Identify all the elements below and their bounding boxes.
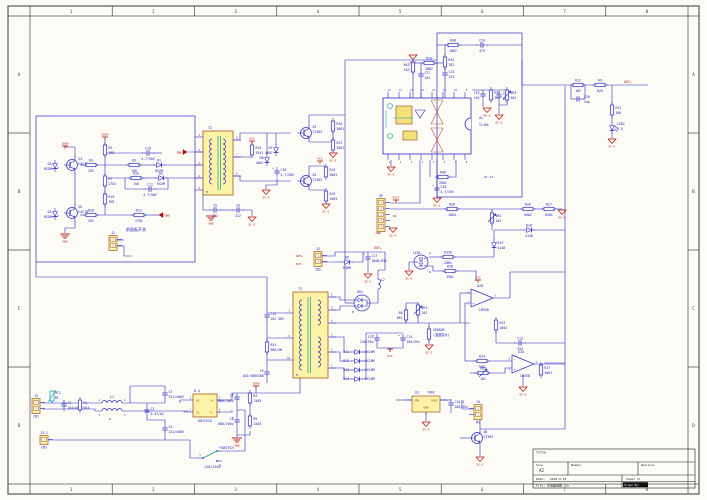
svg-text:DC-G: DC-G: [388, 173, 395, 177]
svg-text:DC-G: DC-G: [477, 463, 484, 467]
svg-text:R14: R14: [330, 168, 336, 172]
svg-text:+: +: [513, 368, 515, 372]
svg-text:2701: 2701: [135, 219, 143, 223]
svg-text:D11: D11: [343, 350, 349, 354]
svg-text:DC-G: DC-G: [410, 61, 417, 65]
svg-text:3001: 3001: [330, 173, 338, 177]
svg-text:R42: R42: [449, 58, 455, 62]
svg-text:2R2: 2R2: [88, 169, 94, 173]
svg-text:C12: C12: [271, 312, 277, 316]
svg-text:C13: C13: [517, 337, 523, 341]
size-value: A2: [539, 468, 545, 473]
svg-text:R20: R20: [88, 209, 94, 213]
svg-text:102: 102: [575, 89, 581, 93]
net-label[interactable]: D: [352, 310, 354, 314]
svg-text:C2383: C2383: [313, 130, 323, 134]
svg-text:RS10M: RS10M: [365, 350, 375, 354]
svg-text:C4: C4: [169, 425, 173, 429]
svg-text:C15: C15: [368, 335, 374, 339]
net-label[interactable]: 前面板开关: [126, 226, 146, 232]
svg-text:D1: D1: [157, 159, 161, 163]
svg-text:4007: 4007: [256, 161, 264, 165]
svg-text:D7: D7: [269, 146, 273, 150]
svg-text:R25: R25: [256, 146, 262, 150]
date-value: 2019.9.29: [550, 477, 566, 481]
svg-text:DC-G: DC-G: [484, 114, 491, 118]
svg-text:3001: 3001: [337, 127, 345, 131]
svg-text:100/35v: 100/35v: [455, 405, 469, 409]
svg-text:GP: GP: [379, 194, 383, 198]
svg-text:Cap: Cap: [584, 100, 590, 104]
svg-text:+: +: [272, 166, 274, 170]
svg-text:102 3KV: 102 3KV: [271, 317, 285, 321]
file-value: 充电器电路.Sch: [547, 482, 569, 487]
svg-text:R15: R15: [330, 192, 336, 196]
svg-text:C11: C11: [147, 183, 153, 187]
svg-text:VCC: VCC: [249, 137, 255, 141]
svg-text:R1: R1: [84, 401, 88, 405]
svg-text:V+: V+: [210, 399, 214, 403]
svg-text:LM358: LM358: [479, 308, 489, 312]
svg-text:D18: D18: [526, 224, 532, 228]
svg-text:+: +: [432, 183, 434, 187]
svg-text:2701: 2701: [109, 182, 117, 186]
svg-text:2R2: 2R2: [88, 219, 94, 223]
svg-text:D14: D14: [343, 377, 349, 381]
svg-text:DC-G: DC-G: [365, 280, 372, 284]
svg-text:102: 102: [496, 219, 502, 223]
net-label[interactable]: OUT+: [624, 80, 632, 84]
svg-text:DC-G: DC-G: [330, 159, 337, 163]
svg-text:1503: 1503: [254, 422, 262, 426]
svg-text:0.47/AC: 0.47/AC: [151, 412, 165, 416]
svg-text:R8: R8: [399, 311, 403, 315]
svg-text:4148: 4148: [525, 234, 533, 238]
svg-text:RS10M: RS10M: [365, 359, 375, 363]
svg-text:D13: D13: [343, 368, 349, 372]
svg-text:VR4: VR4: [496, 214, 502, 218]
number-label: Number: [571, 463, 581, 467]
svg-text:DC-G: DC-G: [559, 216, 566, 220]
svg-text:3901: 3901: [446, 275, 454, 279]
svg-text:GND: GND: [208, 222, 213, 226]
svg-text:4.7/50V: 4.7/50V: [141, 157, 155, 161]
svg-text:GND: GND: [234, 444, 239, 448]
svg-text:D19: D19: [498, 241, 504, 245]
svg-text:DC-G: DC-G: [426, 351, 433, 355]
svg-text:1003: 1003: [330, 197, 338, 201]
svg-text:R4: R4: [89, 159, 93, 163]
svg-text:160V: 160V: [101, 133, 108, 137]
svg-text:J1: J1: [111, 231, 115, 235]
svg-text:102: 102: [480, 377, 486, 381]
svg-text:158: 158: [133, 182, 139, 186]
net-label[interactable]: SWITCH: [221, 446, 234, 450]
svg-text:1541: 1541: [256, 151, 264, 155]
svg-text:R17: R17: [545, 366, 551, 370]
net-label[interactable]: 120/220V: [204, 465, 222, 469]
svg-text:R34: R34: [479, 355, 485, 359]
svg-text:RS10M: RS10M: [365, 368, 375, 372]
svg-text:C2383: C2383: [484, 435, 494, 439]
svg-text:GND: GND: [62, 240, 67, 244]
svg-text:R15A: R15A: [444, 251, 452, 255]
svg-text:R18: R18: [447, 265, 453, 269]
svg-text:RS2M: RS2M: [44, 215, 52, 219]
svg-text:L2: L2: [381, 278, 385, 282]
svg-text:680/200v: 680/200v: [218, 422, 233, 426]
net-label[interactable]: NC: [393, 214, 397, 218]
svg-text:Q2: Q2: [79, 205, 83, 209]
svg-text:M1: M1: [476, 421, 480, 425]
svg-text:1002: 1002: [500, 326, 508, 330]
svg-text:R27: R27: [546, 203, 552, 207]
svg-text:DC-G: DC-G: [520, 393, 527, 397]
svg-text:222/400V: 222/400V: [169, 430, 184, 434]
svg-text:1882: 1882: [449, 49, 457, 53]
svg-text:J3-1: J3-1: [40, 431, 48, 435]
svg-text:C8: C8: [230, 417, 234, 421]
svg-text:-: -: [472, 292, 474, 296]
svg-text:D8: D8: [260, 156, 264, 160]
svg-text:1000/63V: 1000/63V: [372, 259, 387, 263]
svg-text:LED1: LED1: [413, 251, 421, 255]
svg-text:R21: R21: [616, 106, 622, 110]
svg-text:AC: AC: [196, 411, 200, 415]
svg-text:100/35v: 100/35v: [407, 340, 421, 344]
svg-text:R9: R9: [598, 79, 602, 83]
svg-text:R40: R40: [450, 39, 456, 43]
svg-text:C9: C9: [260, 369, 264, 373]
svg-text:4148: 4148: [498, 246, 506, 250]
svg-text:VR2: VR2: [480, 367, 486, 371]
svg-text:5602: 5602: [524, 213, 532, 217]
svg-text:VIN: VIN: [414, 399, 419, 403]
svg-text:+: +: [472, 302, 474, 306]
svg-text:DU1: DU1: [357, 290, 363, 294]
svg-text:D12: D12: [343, 359, 349, 363]
svg-text:R3: R3: [132, 159, 136, 163]
svg-text:VOUT: VOUT: [431, 399, 438, 403]
svg-text:C2383: C2383: [313, 178, 323, 182]
svg-text:C3: C3: [169, 390, 173, 394]
svg-text:+: +: [446, 398, 448, 402]
net-label[interactable]: U1-11: [484, 175, 493, 179]
svg-text:160V: 160V: [252, 382, 259, 386]
svg-text:DC-G: DC-G: [423, 428, 430, 432]
svg-text:10K: 10K: [616, 111, 622, 115]
svg-text:R31: R31: [271, 343, 277, 347]
svg-text:D3: D3: [48, 162, 52, 166]
date-label: Date:: [536, 477, 545, 481]
svg-text:J3: J3: [34, 394, 38, 398]
svg-text:R36: R36: [495, 91, 501, 95]
svg-text:R19: R19: [109, 195, 115, 199]
svg-text:LM358: LM358: [520, 374, 530, 378]
svg-text:VR3: VR3: [511, 91, 517, 95]
svg-text:C10: C10: [145, 147, 151, 151]
svg-text:U2A: U2A: [518, 350, 524, 354]
svg-text:DC-G: DC-G: [249, 223, 256, 227]
svg-text:R16: R16: [337, 122, 343, 126]
svg-text:DC-G: DC-G: [434, 204, 441, 208]
svg-text:CN3: CN3: [41, 446, 47, 450]
svg-text:C16: C16: [281, 168, 287, 172]
svg-text:CN2: CN2: [315, 268, 321, 272]
svg-text:102: 102: [422, 311, 428, 315]
svg-text:VCC: VCC: [387, 354, 393, 358]
transformer-T1[interactable]: T1B7910654321: [285, 287, 336, 378]
svg-text:D9: D9: [345, 256, 349, 260]
svg-text:R22: R22: [500, 321, 506, 325]
svg-text:T1: T1: [298, 287, 302, 291]
svg-text:C28: C28: [441, 185, 447, 189]
svg-text:222/400V: 222/400V: [169, 395, 184, 399]
svg-text:DC-G: DC-G: [390, 234, 397, 238]
svg-text:VCC: VCC: [475, 276, 481, 280]
net-label[interactable]: G: [429, 251, 431, 255]
svg-text:4.7/35V: 4.7/35V: [441, 190, 455, 194]
svg-text:AC: AC: [196, 399, 200, 403]
svg-text:DC-G: DC-G: [496, 121, 503, 125]
svg-text:C10-1: C10-1: [455, 400, 465, 404]
svg-text:7662: 7662: [427, 391, 435, 395]
svg-text:782: 782: [449, 63, 455, 67]
svg-text:KBJ2510: KBJ2510: [198, 419, 212, 423]
svg-text:D2: D2: [159, 172, 163, 176]
svg-text:RS10M: RS10M: [365, 377, 375, 381]
svg-text:104: 104: [474, 96, 480, 100]
schematic-page: 1122334455667788AABBCCDD Q1C4C18Q2C4C18D…: [0, 0, 707, 500]
net-label[interactable]: SENSOR: [433, 328, 445, 332]
drawn-by-label: Drawn By:: [625, 483, 640, 487]
svg-text:J4: J4: [476, 400, 480, 404]
svg-text:1503: 1503: [254, 399, 262, 403]
svg-text:J2: J2: [316, 247, 320, 251]
svg-text:R2: R2: [109, 146, 113, 150]
svg-text:R5: R5: [254, 417, 258, 421]
svg-text:103: 103: [404, 68, 410, 72]
svg-text:C1: C1: [68, 401, 72, 405]
svg-text:VR1: VR1: [422, 306, 428, 310]
svg-text:RT1: RT1: [55, 391, 61, 395]
svg-text:T2: T2: [208, 126, 212, 130]
file-label: File:: [536, 483, 545, 487]
svg-text:C17: C17: [372, 254, 378, 258]
svg-text:DC-G: DC-G: [406, 277, 413, 281]
svg-text:R10: R10: [133, 172, 139, 176]
svg-text:C24: C24: [479, 39, 485, 43]
svg-text:R10M: R10M: [343, 266, 351, 270]
net-label[interactable]: OUT-: [296, 262, 303, 266]
svg-text:C7: C7: [230, 394, 234, 398]
svg-text:223: 223: [449, 75, 455, 79]
svg-text:3001: 3001: [337, 146, 345, 150]
svg-text:8201: 8201: [545, 213, 553, 217]
svg-text:4.7/50V: 4.7/50V: [281, 173, 295, 177]
sheet-of-label: Sheet of: [626, 477, 641, 481]
svg-text:TL494: TL494: [479, 123, 489, 127]
svg-text:D-4: D-4: [194, 389, 200, 393]
svg-text:473: 473: [479, 49, 485, 53]
sheet-background: [0, 0, 707, 500]
svg-text:R28: R28: [426, 57, 432, 61]
svg-text:102: 102: [425, 76, 431, 80]
svg-text:DC-G: DC-G: [609, 145, 616, 149]
svg-text:R12: R12: [575, 79, 581, 83]
svg-text:DC-G: DC-G: [323, 210, 330, 214]
svg-text:R4: R4: [254, 394, 258, 398]
svg-text:LED2: LED2: [617, 122, 625, 126]
svg-text:680/200v: 680/200v: [218, 399, 233, 403]
svg-text:R11: R11: [136, 209, 142, 213]
svg-text:R30: R30: [449, 203, 455, 207]
revision-label: Revision: [641, 463, 655, 467]
svg-text:U2B: U2B: [477, 284, 483, 288]
svg-text:1004: 1004: [448, 213, 456, 217]
svg-text:C26: C26: [584, 95, 590, 99]
svg-text:+: +: [398, 333, 400, 337]
svg-text:Q4: Q4: [313, 173, 317, 177]
svg-text:R23: R23: [337, 141, 343, 145]
net-label[interactable]: R: [429, 270, 431, 274]
svg-text:220/35v: 220/35v: [360, 340, 374, 344]
svg-text:C2: C2: [151, 407, 155, 411]
svg-text:Q6: Q6: [484, 430, 488, 434]
svg-text:56R/5W: 56R/5W: [271, 348, 283, 352]
svg-text:VCC: VCC: [317, 157, 323, 161]
svg-text:C25: C25: [474, 91, 480, 95]
svg-text:GND: GND: [165, 213, 171, 217]
svg-text:1M3: 1M3: [109, 200, 115, 204]
svg-text:5VCC: 5VCC: [392, 196, 399, 200]
svg-text:RS2M: RS2M: [157, 182, 165, 186]
svg-text:4.7/50V: 4.7/50V: [143, 193, 157, 197]
svg-text:681: 681: [397, 316, 403, 320]
svg-text:CN1: CN1: [33, 415, 39, 419]
svg-text:C14: C14: [407, 335, 413, 339]
svg-text:C27: C27: [425, 71, 431, 75]
svg-text:C6: C6: [236, 204, 240, 208]
svg-text:4007: 4007: [265, 151, 273, 155]
svg-text:C5: C5: [213, 204, 217, 208]
size-label: Size: [536, 463, 543, 467]
svg-text:R46: R46: [440, 171, 446, 175]
svg-text:+: +: [363, 252, 365, 256]
svg-text:V-: V-: [210, 411, 214, 415]
net-label[interactable]: (温度探头): [433, 332, 450, 337]
svg-text:U3: U3: [415, 391, 419, 395]
svg-text:502: 502: [511, 96, 517, 100]
svg-text:Q3: Q3: [313, 125, 317, 129]
svg-text:103/400VCBB: 103/400VCBB: [242, 374, 263, 378]
svg-text:R-5: R-5: [617, 127, 623, 131]
svg-text:820: 820: [597, 89, 603, 93]
net-label[interactable]: GND: [376, 231, 382, 235]
svg-text:U1: U1: [479, 116, 483, 120]
net-label[interactable]: OUT+: [374, 246, 382, 250]
svg-text:Q1: Q1: [79, 157, 83, 161]
svg-text:1M3: 1M3: [109, 151, 115, 155]
svg-text:C23: C23: [449, 70, 455, 74]
schematic-sheet[interactable]: 1122334455667788AABBCCDD Q1C4C18Q2C4C18D…: [0, 0, 707, 500]
svg-text:RS2M: RS2M: [44, 167, 52, 171]
svg-text:R7: R7: [109, 177, 113, 181]
svg-text:GND: GND: [177, 150, 183, 154]
svg-text:160V: 160V: [61, 142, 68, 146]
svg-text:564: 564: [84, 406, 90, 410]
svg-text:3001: 3001: [545, 371, 553, 375]
svg-text:RT: RT: [55, 396, 59, 400]
svg-text:-: -: [513, 358, 515, 362]
title-label: Title: [536, 451, 546, 455]
svg-text:L1: L1: [110, 395, 114, 399]
net-label[interactable]: OUT+: [296, 254, 303, 258]
svg-text:GND: GND: [423, 406, 428, 410]
svg-text:D4: D4: [48, 210, 52, 214]
svg-text:DC-G: DC-G: [263, 196, 270, 200]
svg-text:R26: R26: [525, 203, 531, 207]
svg-text:222: 222: [235, 214, 241, 218]
